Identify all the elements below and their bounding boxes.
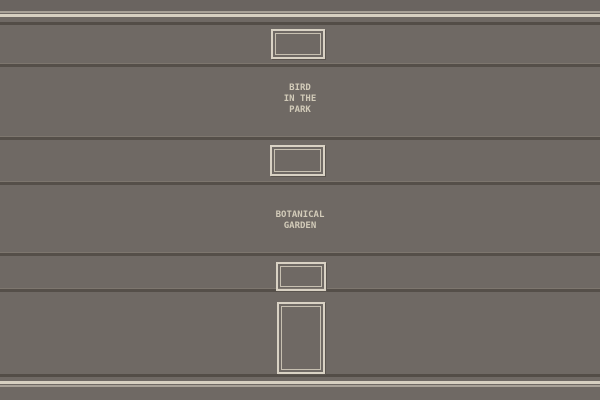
panel-divider [0,181,600,185]
wall-top-band [0,0,600,11]
label-line: GARDEN [200,221,400,232]
picture-frame-middle[interactable] [270,145,325,176]
picture-frame-lower[interactable] [276,262,326,291]
picture-frame-top[interactable] [271,29,325,59]
label-bird-in-the-park: BIRD IN THE PARK [200,83,400,116]
baseboard-dark-line [0,374,600,377]
label-line: BIRD [200,83,400,94]
gallery-wall: BIRD IN THE PARK BOTANICAL GARDEN [0,0,600,400]
label-line: IN THE [200,94,400,105]
crown-molding-dark-line [0,22,600,25]
empty-canvas [274,149,321,172]
baseboard-cream-band [0,381,600,384]
empty-canvas [281,306,321,370]
picture-frame-portrait[interactable] [277,302,325,374]
panel-divider [0,136,600,140]
baseboard-light-line [0,385,600,387]
panel-divider [0,252,600,256]
label-line: PARK [200,105,400,116]
panel-divider [0,63,600,67]
crown-molding-light-line [0,11,600,13]
label-line: BOTANICAL [200,210,400,221]
empty-canvas [275,33,321,55]
label-botanical-garden: BOTANICAL GARDEN [200,210,400,232]
crown-molding-cream-band [0,14,600,17]
empty-canvas [280,266,322,287]
